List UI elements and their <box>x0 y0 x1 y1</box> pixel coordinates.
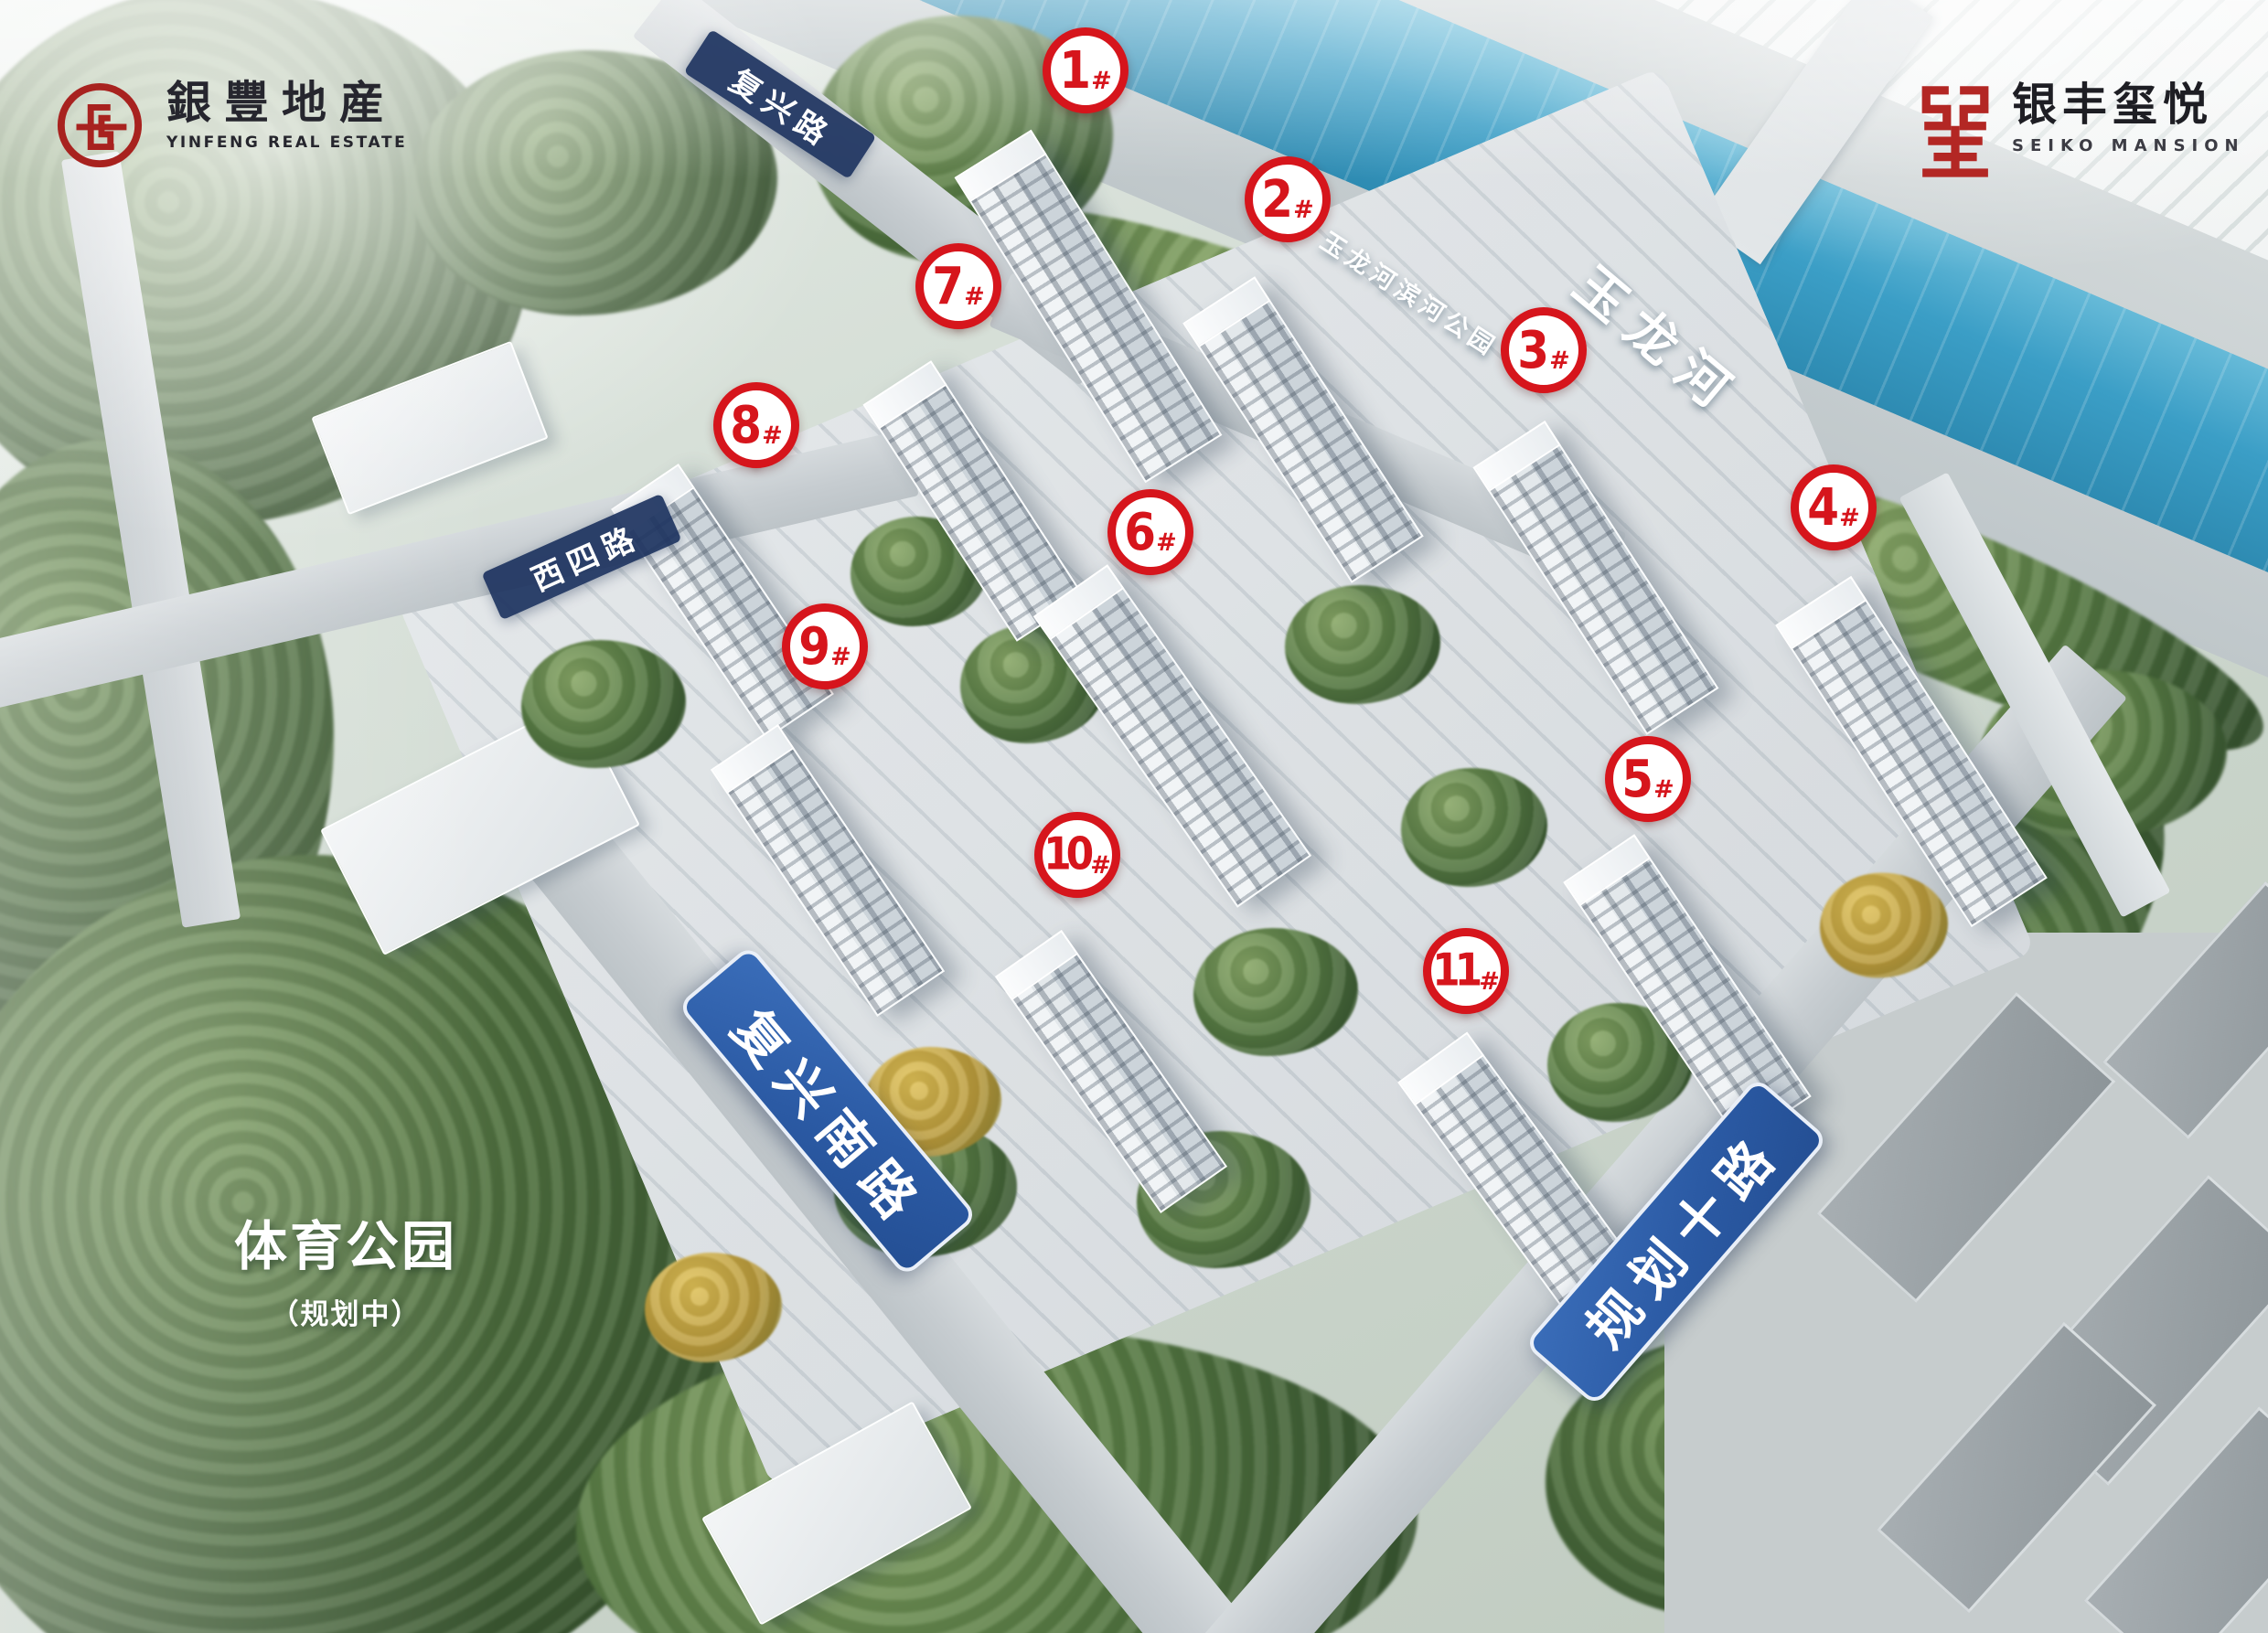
pin-number: 3 <box>1517 325 1547 376</box>
site-plan-rendering: 复兴路 西四路 复兴南路 规划十路 玉龙河 玉龙河滨河公园 体育公园 （规划中）… <box>0 0 2268 1633</box>
building-marker-5[interactable]: 5# <box>1605 736 1691 822</box>
pin-face: 10# <box>1034 812 1120 898</box>
project-logo: 银丰玺悦 SEIKO MANSION <box>1917 82 2245 188</box>
pin-face: 4# <box>1791 464 1877 550</box>
pin-number: 4 <box>1807 482 1837 533</box>
building-marker-11[interactable]: 11# <box>1423 928 1509 1014</box>
pin-face: 1# <box>1043 27 1129 113</box>
building-marker-4[interactable]: 4# <box>1791 464 1877 550</box>
sports-park-title: 体育公园 <box>227 1203 465 1280</box>
pin-face: 5# <box>1605 736 1691 822</box>
building-marker-10[interactable]: 10# <box>1034 812 1120 898</box>
project-name-en: SEIKO MANSION <box>2012 136 2245 155</box>
pin-number: 11 <box>1432 948 1477 993</box>
pin-number: 10 <box>1043 832 1088 877</box>
pin-hash-suffix: # <box>1090 853 1111 878</box>
pin-hash-suffix: # <box>762 423 783 448</box>
pin-hash-suffix: # <box>1293 197 1314 222</box>
pin-number: 9 <box>798 621 829 672</box>
pin-face: 9# <box>782 603 868 689</box>
building-marker-8[interactable]: 8# <box>713 382 799 468</box>
pin-hash-suffix: # <box>1839 506 1860 530</box>
building-marker-7[interactable]: 7# <box>915 243 1001 329</box>
pin-number: 6 <box>1124 507 1154 558</box>
sports-park-subtitle: （规划中） <box>227 1291 465 1332</box>
pin-face: 11# <box>1423 928 1509 1014</box>
project-name-cn: 银丰玺悦 <box>2012 82 2245 127</box>
pin-hash-suffix: # <box>964 284 985 309</box>
building-marker-2[interactable]: 2# <box>1245 156 1331 242</box>
pin-number: 2 <box>1261 174 1291 225</box>
pin-hash-suffix: # <box>1091 69 1112 93</box>
building-marker-1[interactable]: 1# <box>1043 27 1129 113</box>
pin-number: 5 <box>1621 753 1652 805</box>
pin-face: 3# <box>1501 307 1587 393</box>
developer-logo: 銀豐地産 YINFENG REAL ESTATE <box>55 80 407 170</box>
pin-number: 1 <box>1059 45 1089 96</box>
pin-face: 7# <box>915 243 1001 329</box>
pin-face: 2# <box>1245 156 1331 242</box>
pin-hash-suffix: # <box>1156 530 1177 555</box>
pin-number: 8 <box>730 400 760 451</box>
seal-mark-icon <box>1917 82 1992 188</box>
sports-park-label: 体育公园 （规划中） <box>227 1203 465 1332</box>
building-marker-9[interactable]: 9# <box>782 603 868 689</box>
yinfeng-seal-icon <box>55 80 144 170</box>
pin-hash-suffix: # <box>1479 969 1500 994</box>
pin-face: 6# <box>1107 489 1193 575</box>
pin-hash-suffix: # <box>830 645 851 669</box>
building-marker-6[interactable]: 6# <box>1107 489 1193 575</box>
developer-name-cn: 銀豐地産 <box>166 80 407 125</box>
pin-hash-suffix: # <box>1653 777 1674 802</box>
building-marker-3[interactable]: 3# <box>1501 307 1587 393</box>
pin-face: 8# <box>713 382 799 468</box>
developer-name-en: YINFENG REAL ESTATE <box>166 133 407 152</box>
pin-number: 7 <box>932 261 962 312</box>
pin-hash-suffix: # <box>1549 348 1570 373</box>
